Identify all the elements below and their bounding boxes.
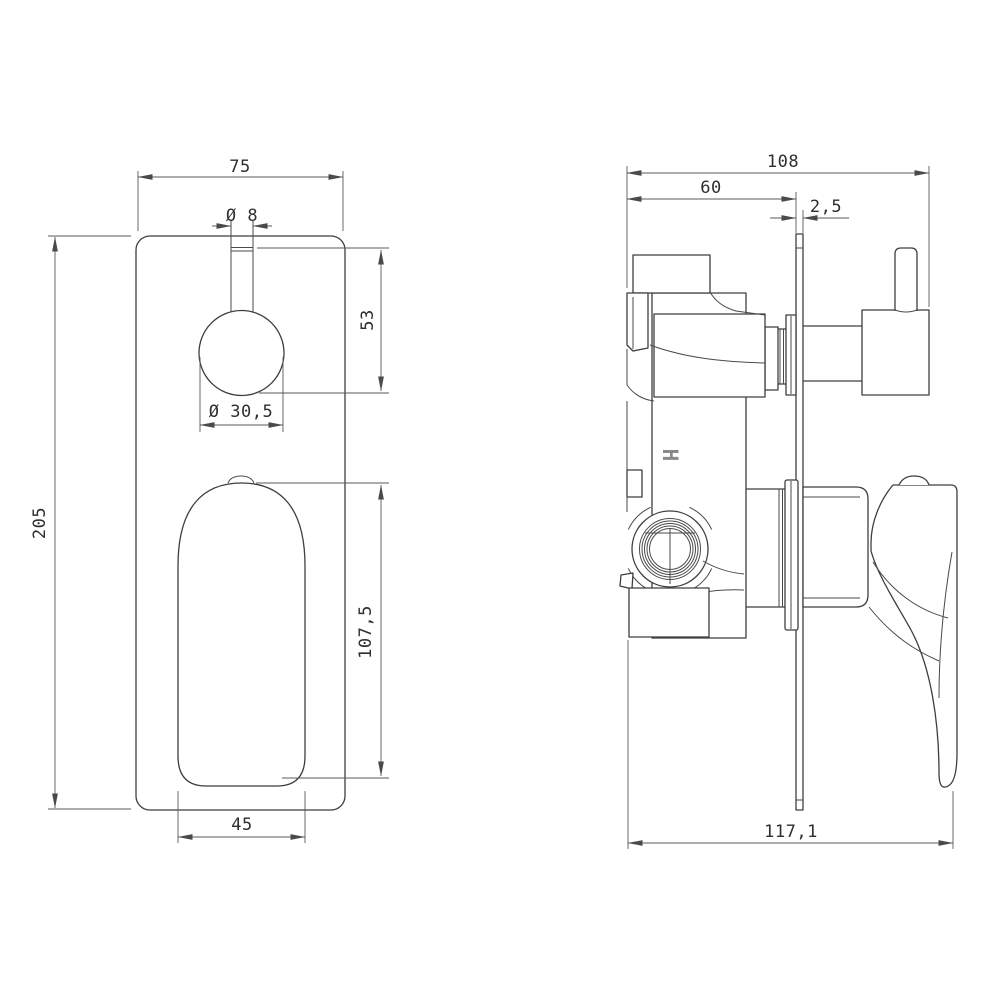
dim-plate-thickness-label: 2,5 (810, 197, 842, 217)
body-bottom-block (629, 588, 709, 637)
lever-cartridge (744, 480, 798, 630)
valve-body: H (620, 255, 765, 638)
top-port (633, 255, 710, 293)
dim-plate-thickness: 2,5 (770, 197, 849, 218)
body-cast-mark: H (658, 449, 682, 462)
technical-drawing-canvas: 75 Ø 8 53 Ø 30,5 205 (0, 0, 1000, 1000)
dim-plate-height: 205 (30, 236, 131, 809)
dim-body-depth: 60 (627, 178, 796, 199)
lever-cap-dome (899, 476, 929, 485)
body-upper-block (654, 314, 765, 397)
lever-blade (871, 485, 957, 787)
mixer-handle-front (178, 483, 305, 786)
body-left-tab-top (627, 293, 648, 351)
dim-knob-drop-label: 53 (358, 309, 378, 330)
dim-total-depth: 117,1 (628, 640, 953, 849)
dim-knob-diameter-label: Ø 30,5 (209, 402, 273, 422)
dim-plate-height-label: 205 (30, 507, 50, 539)
diverter-knob-side (803, 248, 929, 395)
threaded-inlet-port (632, 511, 708, 587)
dim-overall-depth-label: 108 (767, 152, 799, 172)
knob-stem-side (895, 248, 917, 311)
dim-plate-width-label: 75 (229, 157, 250, 177)
mixer-valve-technical-drawing: 75 Ø 8 53 Ø 30,5 205 (0, 0, 1000, 1000)
body-left-tab-bottom (620, 573, 633, 589)
dim-stem-diameter-label: Ø 8 (226, 206, 258, 226)
dim-stem-diameter: Ø 8 (212, 206, 272, 226)
dim-body-depth-label: 60 (700, 178, 721, 198)
upper-cartridge (762, 315, 796, 395)
dim-total-depth-label: 117,1 (764, 822, 818, 842)
lever-handle-side (803, 476, 957, 787)
front-view: 75 Ø 8 53 Ø 30,5 205 (30, 157, 389, 843)
dim-handle-width-label: 45 (231, 815, 252, 835)
side-view: H 108 (620, 152, 957, 849)
body-left-tab-mid (627, 470, 642, 497)
diverter-knob (199, 311, 284, 396)
lever-hub (803, 487, 868, 607)
dim-handle-length-label: 107,5 (356, 605, 376, 659)
